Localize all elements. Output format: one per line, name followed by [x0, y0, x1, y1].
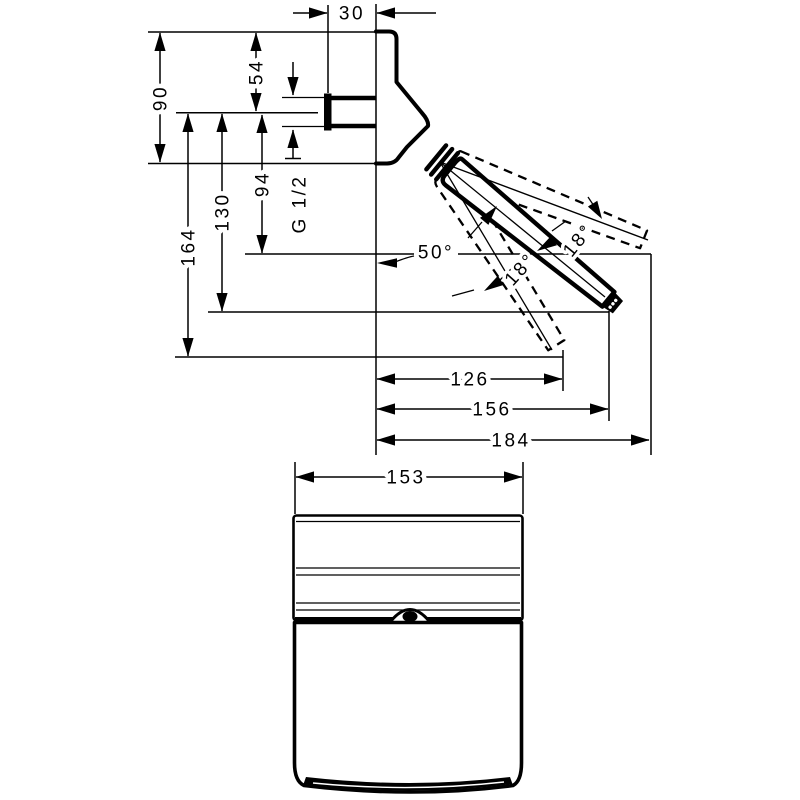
- technical-drawing: 30 90 54 94 130 164 G 1/2 50° 18° 18° 12…: [0, 0, 800, 800]
- dim-126-label: 126: [450, 370, 489, 391]
- thread-label: G 1/2: [290, 175, 311, 234]
- dim-184-label: 184: [491, 431, 530, 452]
- supply-pipe: [324, 94, 377, 131]
- side-view: 30 90 54 94 130 164 G 1/2 50° 18° 18° 12…: [148, 4, 651, 456]
- pivot-knob-dot: [403, 611, 418, 622]
- dim-54-label: 54: [247, 59, 268, 85]
- angle-50-annotation: [377, 256, 414, 268]
- front-view: 153: [294, 462, 524, 792]
- dim-153-label: 153: [386, 468, 425, 489]
- dim-thread-g12: [285, 62, 301, 159]
- dim-94-label: 94: [253, 171, 274, 197]
- front-body-top: [294, 516, 523, 623]
- front-body-bottom: [295, 623, 522, 793]
- mounting-body: [376, 32, 428, 164]
- pipe-end-cap: [324, 94, 332, 131]
- dim-30-label: 30: [339, 4, 365, 25]
- technical-drawing-page: 30 90 54 94 130 164 G 1/2 50° 18° 18° 12…: [0, 0, 800, 800]
- dim-90-label: 90: [151, 85, 172, 111]
- angle-50-label: 50°: [418, 243, 454, 264]
- dim-164-label: 164: [179, 227, 200, 266]
- dim-156-label: 156: [472, 400, 511, 421]
- dim-130-label: 130: [213, 192, 234, 231]
